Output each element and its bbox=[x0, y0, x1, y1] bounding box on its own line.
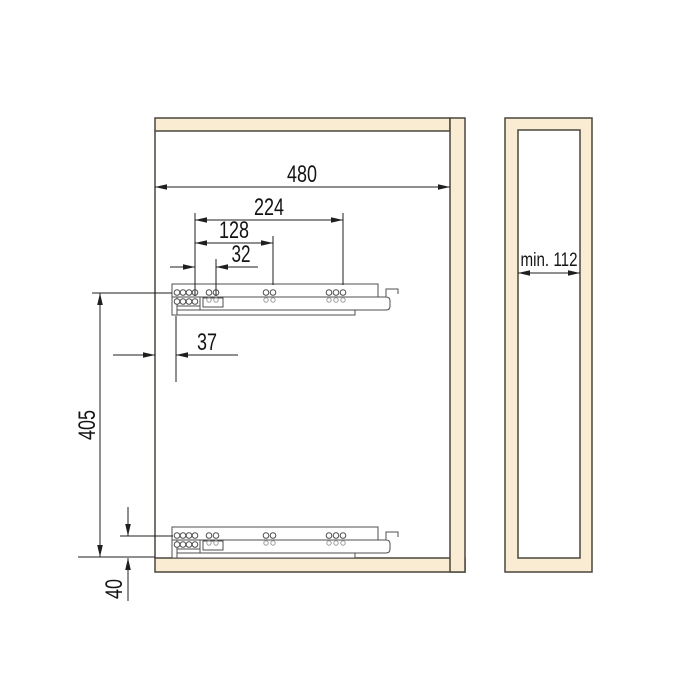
dim-label-width: 480 bbox=[287, 161, 317, 188]
technical-drawing-page: min. 112 480 224 bbox=[0, 0, 700, 700]
dim-arrow-right bbox=[438, 184, 450, 190]
dim-label-slide-spacing: 405 bbox=[74, 410, 101, 440]
drawer-slide-lower bbox=[172, 527, 398, 558]
dim-label-bottom-offset: 40 bbox=[101, 579, 128, 599]
dim-label-holes-first: 32 bbox=[232, 241, 251, 268]
dim-arrow-down-pointing bbox=[125, 524, 131, 536]
dim-arrow-down bbox=[97, 545, 103, 557]
dim-arrow-left bbox=[155, 184, 167, 190]
dim-arrow-right-pointing bbox=[183, 264, 195, 270]
dim-arrow-up bbox=[97, 293, 103, 305]
dim-arrow-left-pointing bbox=[216, 264, 228, 270]
dim-front-setback: 37 bbox=[113, 316, 238, 382]
cabinet-side-inner-cavity bbox=[518, 130, 580, 558]
cabinet-top-panel bbox=[155, 118, 450, 131]
dim-label-front-setback: 37 bbox=[197, 329, 217, 356]
dim-arrow-left bbox=[195, 240, 207, 246]
cabinet-right-panel bbox=[450, 118, 465, 572]
cabinet-bottom-panel bbox=[155, 558, 465, 572]
side-view: min. 112 bbox=[505, 118, 592, 572]
dim-bottom-offset: 40 bbox=[101, 507, 173, 601]
dim-label-depth-min: min. 112 bbox=[521, 250, 578, 271]
dim-slide-spacing: 405 bbox=[74, 293, 172, 557]
cabinet-slide-installation-drawing: min. 112 480 224 bbox=[0, 0, 700, 700]
dim-label-holes-outer: 224 bbox=[254, 194, 284, 221]
dim-width: 480 bbox=[155, 161, 450, 190]
dim-arrow-up-pointing bbox=[125, 558, 131, 570]
dim-arrow-right-pointing bbox=[143, 352, 155, 358]
drawer-slide-upper bbox=[172, 284, 398, 315]
dim-arrow-right bbox=[331, 217, 343, 223]
dim-arrow-left-pointing bbox=[176, 352, 188, 358]
dim-label-holes-mid: 128 bbox=[219, 217, 249, 244]
front-view: 480 224 128 32 bbox=[74, 118, 465, 601]
dim-arrow-right bbox=[261, 240, 273, 246]
dim-holes-outer: 224 bbox=[195, 194, 343, 296]
dim-arrow-left bbox=[195, 217, 207, 223]
